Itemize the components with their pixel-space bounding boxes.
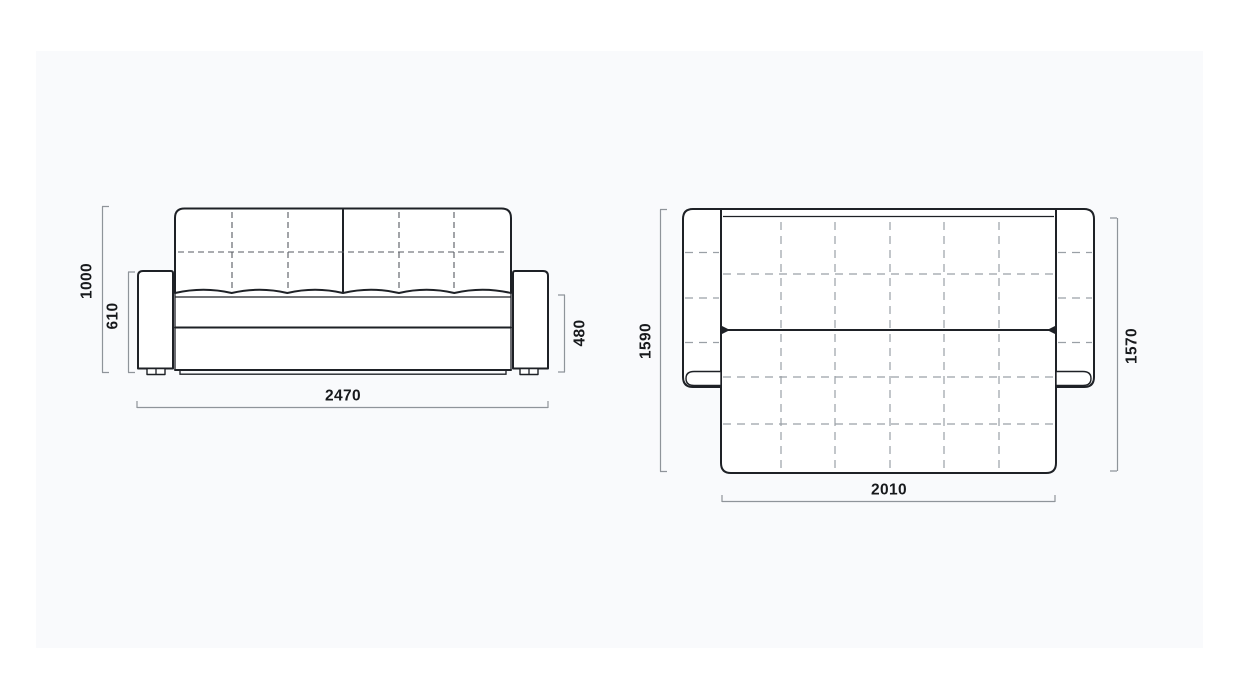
- page: 1000 610 480 2470: [0, 0, 1240, 700]
- dim-overall-height-label: 1000: [79, 263, 96, 299]
- seat-fill: [175, 294, 511, 370]
- dim-seat-height-label: 480: [572, 319, 589, 346]
- bed-outline: [721, 209, 1056, 473]
- dim-armrest-height-label: 610: [105, 302, 122, 329]
- top-armrest-left: [683, 209, 721, 387]
- top-armrest-right: [1056, 209, 1094, 387]
- top-armrest-right-foot: [1056, 372, 1091, 386]
- drawing-canvas: 1000 610 480 2470: [0, 0, 1240, 700]
- front-armrest-left: [138, 271, 173, 375]
- top-armrest-left-foot: [686, 372, 721, 386]
- armrest-left-outline: [138, 271, 173, 369]
- top-bed-body: [721, 209, 1056, 473]
- armrest-right-outline: [513, 271, 548, 369]
- front-backrest: [175, 209, 511, 294]
- dim-bed-depth-label: 1570: [1124, 328, 1141, 364]
- front-armrest-right: [513, 271, 548, 375]
- dim-bed-width-label: 2010: [871, 482, 907, 499]
- dim-overall-depth-label: 1590: [638, 323, 655, 359]
- dim-overall-width-label: 2470: [325, 388, 361, 405]
- front-seat-base: [175, 293, 511, 374]
